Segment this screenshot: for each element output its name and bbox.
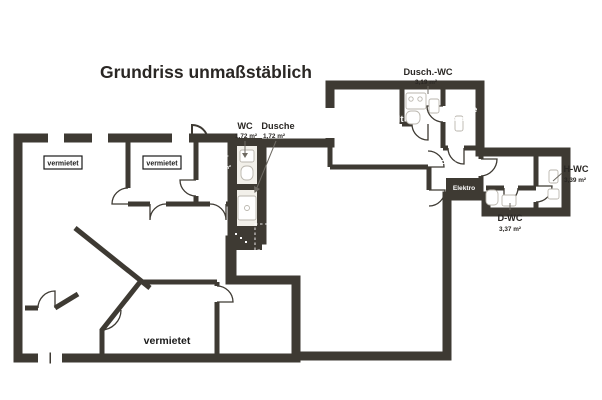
room-area-vorraum: 2,52 m² [512, 171, 532, 178]
window-top-2 [92, 133, 108, 144]
chimney-block [230, 228, 252, 248]
room-name-elektro: Elektro [453, 185, 475, 192]
window-top-3 [172, 133, 189, 144]
dotted-square-rented [125, 225, 152, 252]
room-area-raum-24-92: 24,92 m² [155, 322, 181, 329]
label-duschwc-area: 3,19 m² [415, 79, 437, 86]
window-left-green [325, 108, 335, 138]
room-name-raum-46-90: Raum [42, 201, 68, 212]
room-area-flur-5-80: 5,80 m² [211, 164, 231, 171]
room-name-aufenthalt: Aufenthalt [357, 114, 405, 125]
hwc-toilet-icon [548, 189, 559, 199]
vermietet-badge-2-label: vermietet [146, 161, 178, 168]
room-area-flur-5-05: 5,05 m² [439, 172, 459, 179]
room-area-raum-46-90: 46,90 m² [42, 214, 68, 221]
room-area-flur-38-74: 38,74 m² [92, 302, 118, 309]
label-wc-area: 1,72 m² [235, 133, 257, 140]
floor-plan-page: Grundriss unmaßstäblich [0, 0, 602, 400]
room-name-flur-5-80: Flur [213, 153, 228, 162]
rented-interior-walls [25, 141, 232, 358]
page-title: Grundriss unmaßstäblich [100, 62, 312, 82]
window-top-1 [48, 133, 64, 144]
room-name-flur-5-05: Flur [440, 159, 455, 168]
label-hwc-area: 3,39 m² [564, 177, 586, 184]
vermietet-text-label: vermietet [144, 335, 191, 347]
dwc-sink-icon [502, 195, 516, 206]
shower-tray-icon [238, 196, 256, 220]
vermietet-badge-1-label: vermietet [47, 161, 79, 168]
room-name-flur-38-74: Flur [96, 289, 114, 300]
wc-toilet-icon [241, 166, 253, 180]
window-bottom-mullion [50, 353, 52, 364]
dwc-toilet-icon [486, 190, 498, 205]
room-name-vorraum: Vorraum [505, 158, 532, 165]
label-dwc-area: 3,37 m² [499, 226, 521, 233]
label-wc-name: WC [237, 121, 253, 131]
room-name-kueche: Küche [453, 105, 478, 114]
room-name-buero-17-63: Büro [151, 174, 173, 185]
label-dusche-area: 1,72 m² [263, 133, 285, 140]
label-duschwc-name: Dusch.-WC [404, 67, 453, 77]
room-name-buero-18-18: Büro [245, 304, 267, 315]
room-area-kueche: 9,08 m² [453, 116, 473, 123]
room-name-raum-24-92: Raum [155, 309, 181, 320]
wc-cistern-icon [240, 150, 254, 162]
label-dusche-name: Dusche [261, 121, 294, 131]
duschwc-shower-icon [429, 99, 439, 113]
room-name-raum-118-83: Raum [351, 230, 377, 241]
duschwc-toilet-icon [406, 111, 420, 124]
duschwc-sink-icon [406, 93, 426, 109]
room-area-aufenthalt: 13,48 m² [358, 127, 384, 134]
label-hwc-name: H-WC [563, 164, 588, 174]
floor-plan-svg: Grundriss unmaßstäblich [0, 0, 602, 400]
room-area-buero-17-63: 17,63 m² [149, 187, 175, 194]
label-dwc-name: D-WC [497, 213, 522, 223]
room-area-raum-118-83: 118,83 m² [350, 244, 379, 251]
room-area-buero-18-18: 18,18 m² [243, 317, 269, 324]
